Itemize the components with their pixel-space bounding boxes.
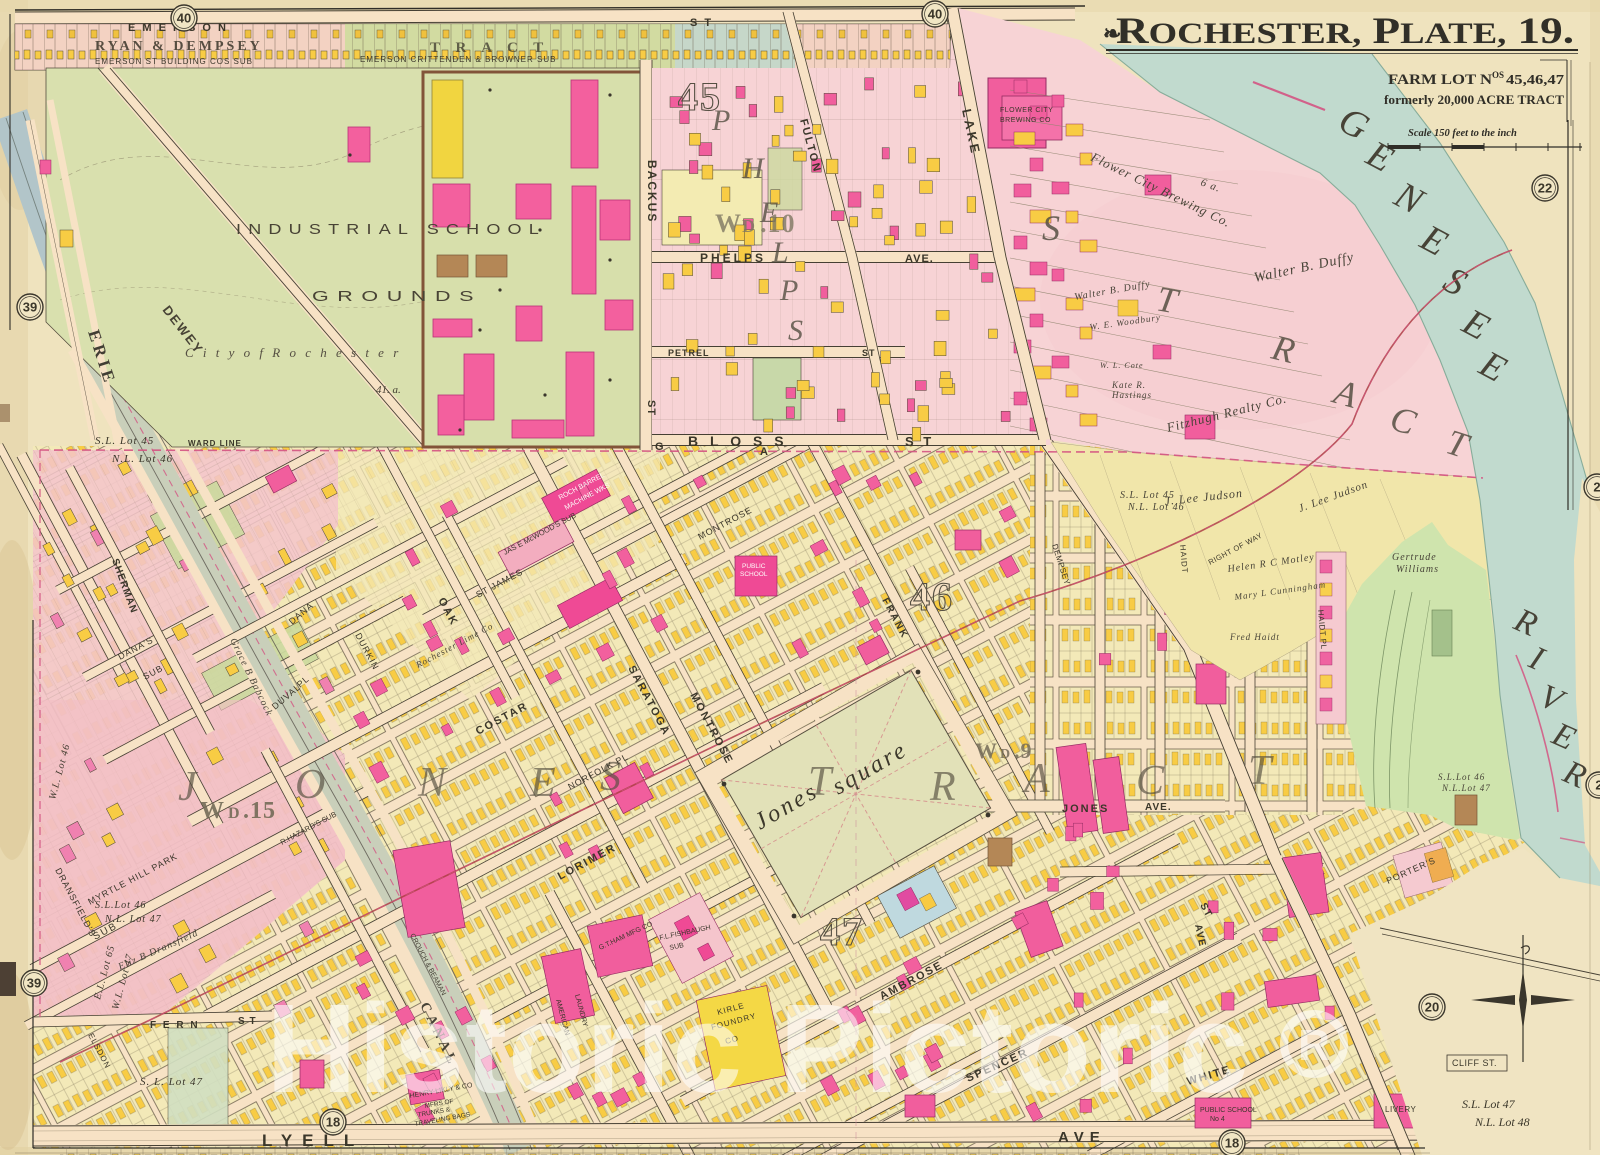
svg-text:Historic Pictoric: Historic Pictoric [266,978,1249,1119]
svg-text:R: R [1298,1021,1330,1070]
